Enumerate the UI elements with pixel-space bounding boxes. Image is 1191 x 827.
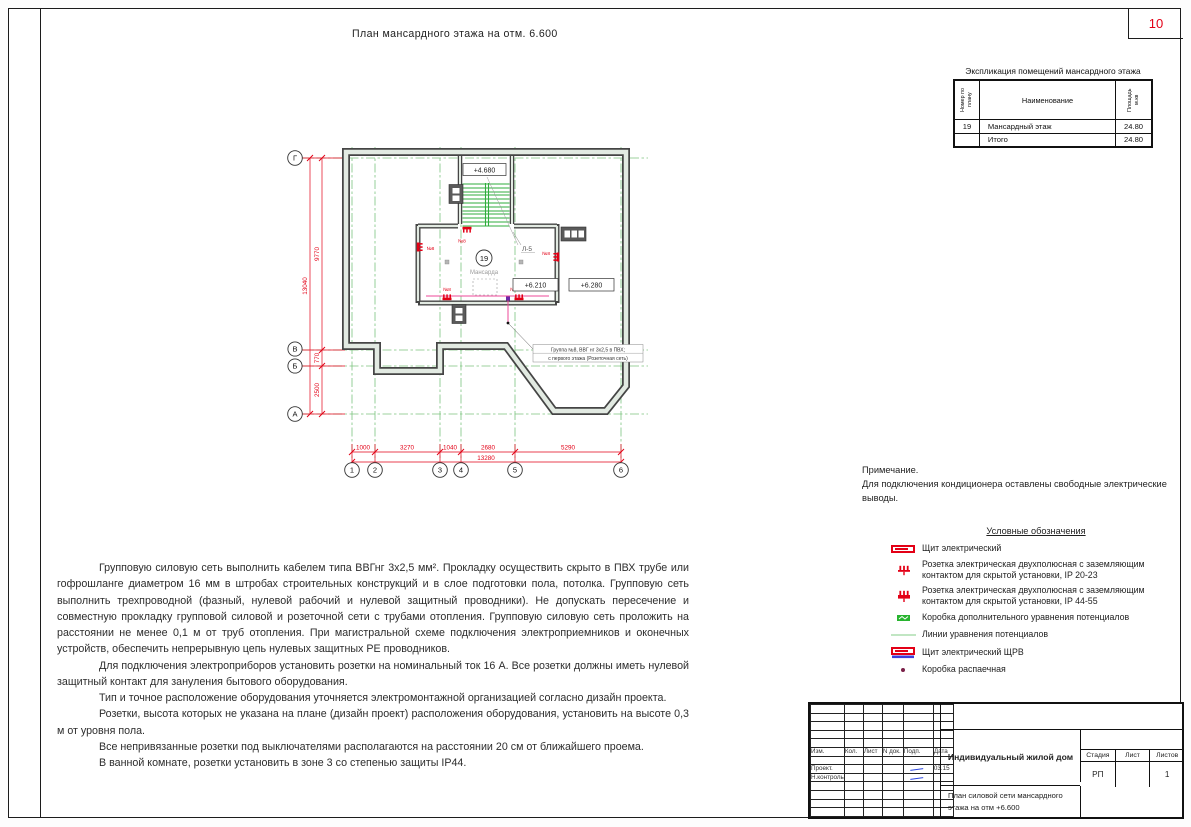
note-paragraph: Все непривязанные розетки под выключател… — [57, 739, 689, 755]
explication-grid: Номер по плану Наименование Площадь м.кв… — [953, 79, 1153, 148]
stage-label: Стадия — [1081, 750, 1115, 762]
wire-drop-point — [507, 322, 510, 325]
signature — [910, 773, 924, 780]
junction-box — [506, 297, 510, 301]
elevation-stair: +4.680 — [474, 167, 496, 174]
grid-bubble-3: 3 — [438, 466, 442, 475]
potential-line-icon — [886, 628, 922, 642]
grid-bubble-a: А — [292, 410, 297, 419]
col-header-name: Наименование — [979, 80, 1115, 120]
legend-label: Линии уравнения потенциалов — [922, 629, 1186, 640]
stamp-row-ncontrol: Н.контроль — [811, 773, 954, 782]
legend: Условные обозначения Щит электрический Р… — [886, 526, 1186, 679]
dim-bottom-5: 5290 — [561, 445, 576, 452]
socket-filled-icon — [886, 587, 922, 605]
dim-bottom-total: 13280 — [477, 455, 495, 462]
stamp-row-proekt: Проект. 03.15 — [811, 765, 954, 774]
room-name: Мансарда — [470, 270, 499, 276]
title-block-right: Индивидуальный жилой дом План силовой се… — [940, 704, 1184, 817]
title-block: Изм. Кол. Лист N док. Подп. Дата Проект.… — [808, 702, 1184, 819]
outlet-label: №8 — [427, 246, 435, 252]
note-paragraph: Для подключения электроприборов установи… — [57, 658, 689, 691]
table-row: Итого 24.80 — [954, 133, 1152, 147]
project-name: Индивидуальный жилой дом — [941, 729, 1080, 786]
title-block-left-grid: Изм. Кол. Лист N док. Подп. Дата Проект.… — [810, 704, 954, 817]
note-paragraph: Тип и точное расположение оборудования у… — [57, 690, 689, 706]
dim-bottom-3: 1040 — [443, 445, 458, 452]
col-header-area: Площадь м.кв — [1127, 83, 1141, 117]
dim-bottom-4: 2680 — [481, 445, 496, 452]
legend-label: Щит электрический ЩРВ — [922, 647, 1186, 658]
legend-title: Условные обозначения — [886, 526, 1186, 536]
grid-bubble-1: 1 — [350, 466, 354, 475]
equipotential-box — [519, 260, 523, 264]
stamp-col-ndoc: N док. — [882, 747, 903, 756]
grid-bubble-4: 4 — [459, 466, 463, 475]
room-number: 19 — [480, 254, 488, 263]
sheets-col: Листов 1 — [1150, 750, 1184, 787]
grid-bubble-g: Г — [293, 154, 297, 163]
dim-left-1: 9770 — [314, 247, 321, 262]
callout-line1: Группа №8, ВВГ нг 3х2,5 в ПВХ; — [551, 347, 625, 353]
stamp-bottom-right-cell — [1080, 786, 1184, 817]
signature — [910, 765, 924, 772]
drawing-title: План мансардного этажа на отм. 6.600 — [352, 28, 632, 40]
dim-bottom-2: 3270 — [400, 445, 415, 452]
legend-label: Розетка электрическая двухполюсная с заз… — [922, 585, 1186, 608]
potential-box-icon — [886, 611, 922, 625]
note-paragraph: Розетки, высота которых не указана на пл… — [57, 706, 689, 739]
legend-item: Розетка электрическая двухполюсная с заз… — [886, 585, 1186, 608]
sheet-value — [1116, 762, 1150, 787]
grid-bubble-v: В — [292, 345, 297, 354]
dim-left-2: 770 — [314, 352, 321, 363]
vent-block-bottom — [452, 305, 466, 324]
elevation-outside: +6.280 — [581, 283, 603, 290]
dim-left-total: 13040 — [302, 277, 309, 295]
sheet-binding-margin — [40, 8, 41, 818]
legend-item: Коробка распаечная — [886, 664, 1186, 676]
dim-left-3: 2500 — [314, 383, 321, 398]
stamp-col-izm: Изм. — [811, 747, 845, 756]
stair-label: Л-5 — [522, 246, 532, 253]
stamp-col-list: Лист — [863, 747, 882, 756]
stamp-role-label: Н.контроль — [811, 773, 845, 782]
signature-cell — [903, 773, 933, 782]
sheet-label: Лист — [1116, 750, 1150, 762]
elevation-room: +6.210 — [525, 283, 547, 290]
vent-block-left — [449, 185, 463, 204]
explication-table: Экспликация помещений мансардного этажа … — [953, 66, 1153, 148]
stamp-col-kol: Кол. — [844, 747, 863, 756]
electrical-panel-icon — [886, 542, 922, 556]
grid-bubble-6: 6 — [619, 466, 623, 475]
sheet-title-line1: План силовой сети мансардного — [948, 790, 1080, 802]
stamp-header-row: Изм. Кол. Лист N док. Подп. Дата — [811, 747, 954, 756]
grid-bubble-2: 2 — [373, 466, 377, 475]
table-row: 19 Мансардный этаж 24.80 — [954, 120, 1152, 134]
outlet-label: №8 — [542, 251, 550, 257]
sheets-label: Листов — [1150, 750, 1184, 762]
grid-bubble-b: Б — [293, 362, 298, 371]
stage-value: РП — [1081, 762, 1115, 787]
signature-cell — [903, 765, 933, 774]
remark-block: Примечание. Для подключения кондиционера… — [862, 464, 1191, 506]
general-notes: Групповую силовую сеть выполнить кабелем… — [57, 560, 689, 771]
legend-label: Коробка распаечная — [922, 664, 1186, 675]
legend-label: Щит электрический — [922, 543, 1186, 554]
sheets-value: 1 — [1150, 762, 1184, 787]
remark-text: Для подключения кондиционера оставлены с… — [862, 478, 1191, 506]
explication-title: Экспликация помещений мансардного этажа — [953, 66, 1153, 76]
legend-item: Коробка дополнительного уравнения потенц… — [886, 611, 1186, 625]
stage-col: Стадия РП — [1081, 750, 1116, 787]
legend-item: Щит электрический — [886, 542, 1186, 556]
electrical-panel-shrv-icon — [886, 645, 922, 661]
junction-box-icon — [886, 664, 922, 676]
outlet-label: №8 — [458, 239, 466, 245]
callout-line2: с первого этажа (Розеточная сеть) — [548, 356, 628, 362]
note-paragraph: Групповую силовую сеть выполнить кабелем… — [57, 560, 689, 658]
outlet-label: №8 — [443, 287, 451, 293]
sheet-title: План силовой сети мансардного этажа на о… — [941, 786, 1080, 817]
socket-open-icon — [886, 561, 922, 579]
remark-title: Примечание. — [862, 464, 1191, 478]
stage-table: Стадия РП Лист Листов 1 — [1080, 729, 1184, 782]
legend-item: Розетка электрическая двухполюсная с заз… — [886, 559, 1186, 582]
stage-empty-row — [1081, 729, 1184, 750]
page-number-box: 10 — [1128, 9, 1183, 39]
legend-label: Розетка электрическая двухполюсная с заз… — [922, 559, 1186, 582]
note-paragraph: В ванной комнате, розетки установить в з… — [57, 755, 689, 771]
sheet-title-line2: этажа на отм +6.600 — [948, 802, 1080, 814]
stamp-role-label: Проект. — [811, 765, 845, 774]
floor-plan: 9770 770 2500 13040 1000 3270 1040 2680 … — [285, 140, 685, 488]
legend-label: Коробка дополнительного уравнения потенц… — [922, 612, 1186, 623]
sheet-col: Лист — [1116, 750, 1151, 787]
stamp-col-podp: Подп. — [903, 747, 933, 756]
dim-bottom-1: 1000 — [356, 445, 371, 452]
grid-bubble-5: 5 — [513, 466, 517, 475]
stamp-top-cell — [941, 704, 1184, 730]
circuit-callout: Группа №8, ВВГ нг 3х2,5 в ПВХ; с первого… — [533, 345, 643, 363]
legend-item: Щит электрический ЩРВ — [886, 645, 1186, 661]
col-header-number: Номер по плану — [960, 83, 974, 117]
vent-block-right — [561, 227, 586, 241]
page-number: 10 — [1149, 16, 1163, 31]
legend-item: Линии уравнения потенциалов — [886, 628, 1186, 642]
equipotential-box — [445, 260, 449, 264]
